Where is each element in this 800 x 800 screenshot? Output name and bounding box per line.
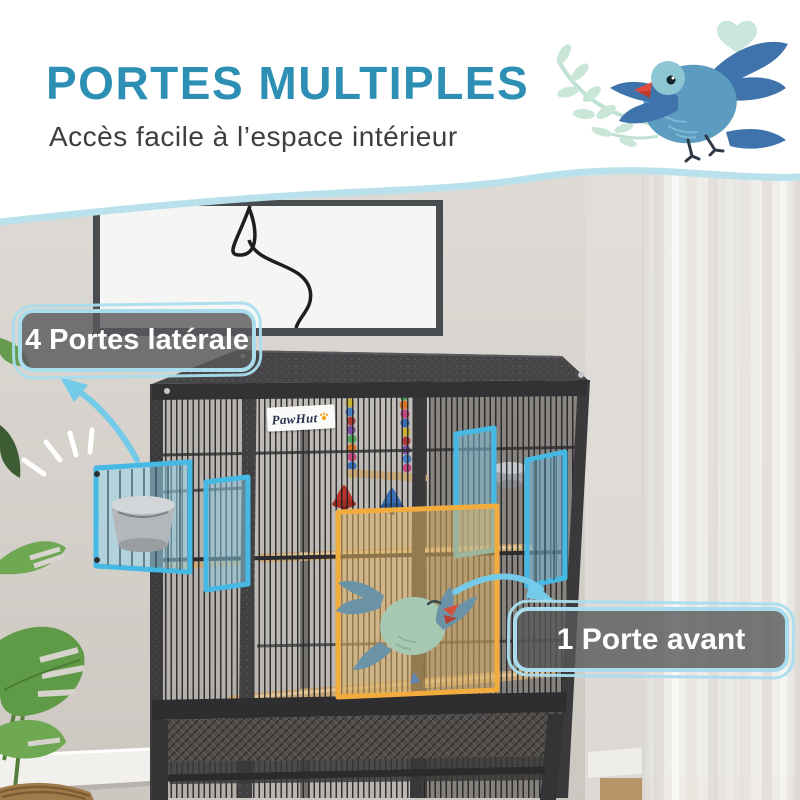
callout-front-door: 1 Porte avant <box>513 607 789 672</box>
side-door-left-face <box>206 477 248 590</box>
callout-side-doors: 4 Portes latérale <box>18 309 256 372</box>
callout-front-door-label: 1 Porte avant <box>557 623 745 657</box>
feeder-bowl-left <box>111 496 175 552</box>
callout-side-doors-label: 4 Portes latérale <box>25 324 249 357</box>
blue-bird-icon <box>610 42 788 161</box>
page-subtitle: Accès facile à l’espace intérieur <box>49 121 458 153</box>
side-door-open-left <box>94 462 190 572</box>
sheer-curtain <box>642 168 800 800</box>
page-title: PORTES MULTIPLES <box>46 56 529 110</box>
paw-icon <box>319 411 331 423</box>
product-infographic: PORTES MULTIPLES Accès facile à l’espace… <box>0 0 800 800</box>
brand-plate: PawHut <box>266 404 335 432</box>
side-door-open-right <box>527 452 565 586</box>
brand-label: PawHut <box>271 411 317 426</box>
bird-illustration-icon <box>540 8 796 166</box>
